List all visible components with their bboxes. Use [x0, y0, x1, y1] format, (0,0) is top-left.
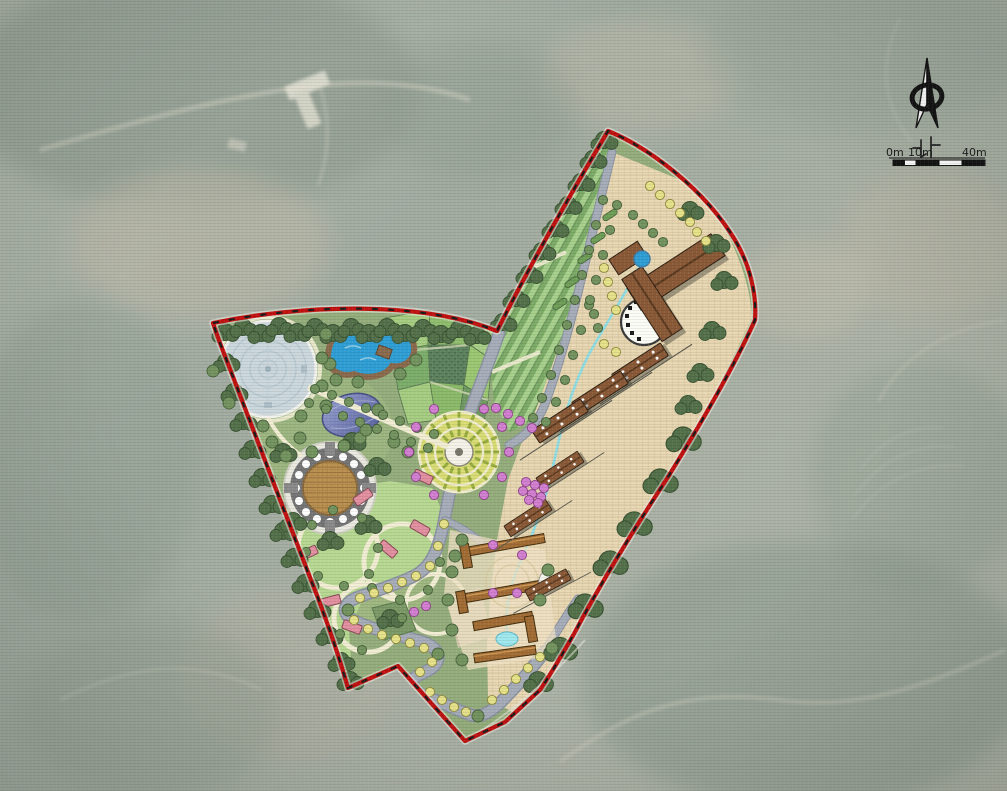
- round-pond: [634, 251, 650, 267]
- small-pond: [496, 632, 518, 646]
- photo-building: [227, 70, 330, 152]
- photo-terraces: [852, 428, 965, 520]
- master-plan-svg: 北 0m 10m 40m: [0, 0, 1007, 791]
- north-compass: 北: [910, 58, 944, 160]
- scale-bar: 0m 10m 40m: [886, 146, 987, 166]
- scale-label-40: 40m: [962, 146, 987, 159]
- scale-label-0: 0m: [886, 146, 904, 159]
- site-plan-image: 北 0m 10m 40m: [0, 0, 1007, 791]
- scale-label-10: 10m: [908, 146, 933, 159]
